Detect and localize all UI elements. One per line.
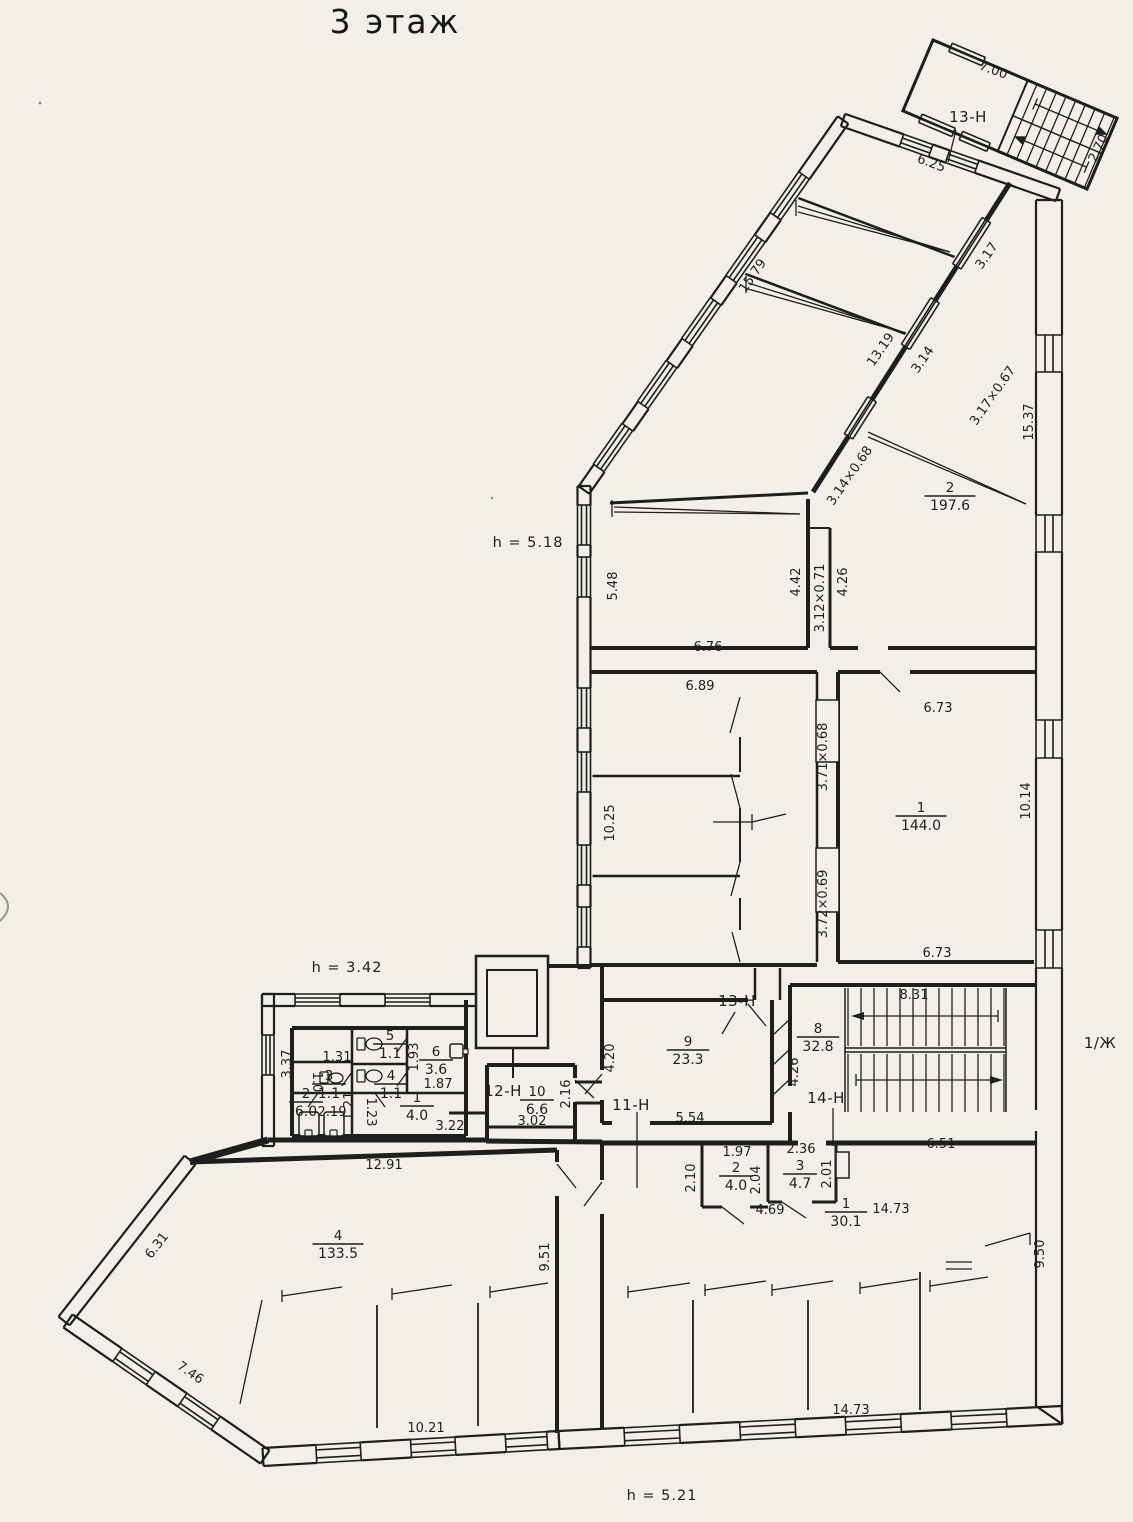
section-label: 14-Н: [807, 1089, 845, 1107]
room-number: 3: [325, 1068, 334, 1084]
height-label: h = 5.21: [627, 1488, 698, 1504]
room-number: 6: [432, 1044, 441, 1060]
dimension-label: 4.20: [603, 1044, 618, 1073]
section-label: 1/Ж: [1084, 1034, 1116, 1052]
dimension-label: 1.31: [323, 1050, 352, 1065]
wall-line: [240, 1300, 262, 1404]
dimension-label: 6.31: [142, 1230, 172, 1262]
room-label: 1144.0: [896, 800, 947, 834]
fixture: [487, 970, 537, 1036]
wall-line: [316, 1445, 317, 1463]
room-number: 1: [413, 1090, 422, 1106]
room-label: 24.0: [719, 1160, 753, 1194]
fixture: [836, 1152, 849, 1178]
room-number: 5: [386, 1028, 395, 1044]
stair-arrow-icon: [851, 1012, 864, 1020]
fixture: [357, 1038, 365, 1050]
room-label: 4133.5: [313, 1228, 364, 1262]
wall-line: [557, 1164, 576, 1188]
dimension-label: 14.73: [832, 1403, 869, 1418]
wall-line: [795, 1419, 796, 1437]
wall-line: [455, 1437, 456, 1455]
dimension-label: 3.37: [280, 1050, 295, 1079]
wall-line: [740, 1422, 741, 1440]
dimension-label: 6.73: [923, 946, 952, 961]
dimension-label: 7.00: [977, 59, 1009, 83]
wall-line: [782, 1202, 806, 1218]
wall-line: [705, 1281, 766, 1290]
dimension-label: 6.73: [924, 701, 953, 716]
dimension-label: 1.97: [723, 1145, 752, 1160]
wall-line: [63, 1328, 260, 1464]
dimension-label: 4.26: [836, 568, 851, 597]
toilet-bowl-icon: [366, 1070, 382, 1082]
dimension-label: 2.10: [684, 1164, 699, 1193]
walls-layer: [58, 114, 1062, 1466]
wall-line: [70, 1164, 196, 1325]
wall-line: [584, 1182, 602, 1206]
dimension-label: 8.31: [900, 988, 929, 1003]
wall-line: [731, 774, 740, 808]
window-clear: [1034, 515, 1064, 552]
dimension-label: 2.70: [1086, 132, 1112, 165]
fixture: [357, 1070, 365, 1082]
wall-line: [262, 1448, 263, 1466]
room-label: 63.6: [419, 1044, 453, 1078]
wall-line: [901, 1414, 902, 1432]
window-clear: [1034, 930, 1064, 968]
dimension-label: 9.51: [538, 1243, 553, 1272]
wall-line: [585, 1074, 602, 1094]
wall-line: [486, 1141, 602, 1142]
wall-line: [505, 1434, 506, 1452]
wall-line: [773, 1020, 789, 1035]
wall-line: [1013, 116, 1102, 154]
wall-line: [772, 1281, 833, 1290]
room-area: 6.6: [526, 1102, 548, 1118]
wall-line: [722, 1012, 735, 1034]
section-label: 13-Н: [949, 108, 987, 126]
section-label: 13-Н: [718, 992, 756, 1010]
height-label: h = 5.18: [493, 535, 564, 551]
wall-line: [722, 1207, 744, 1224]
stair-arrow-icon: [990, 1076, 1003, 1084]
room-area: 6.0: [295, 1104, 317, 1120]
wall-line: [360, 1442, 361, 1460]
wall-line: [731, 862, 740, 896]
dimension-label: 1.93: [407, 1043, 422, 1072]
wall-line: [985, 1233, 1030, 1246]
wall-line: [282, 1287, 342, 1296]
room-area: 133.5: [318, 1246, 358, 1262]
dimension-label: 3.22: [436, 1119, 465, 1134]
floor-plan: 7.006.252.7015.793.1713.193.143.17×0.671…: [0, 0, 1133, 1522]
room-area: 4.0: [406, 1108, 428, 1124]
room-area: 144.0: [901, 818, 941, 834]
wall-line: [624, 1428, 625, 1446]
dimension-label: 1.23: [363, 1098, 378, 1127]
scan-speck: [491, 497, 493, 499]
room-number: 2: [732, 1160, 741, 1176]
dimension-label: 4.69: [756, 1203, 785, 1218]
wall-line: [490, 1283, 548, 1292]
dimension-label: 1.87: [424, 1077, 453, 1092]
dimension-label: 3.14: [909, 344, 938, 376]
room-area: 1.1: [318, 1086, 340, 1102]
dimension-label: 6.89: [686, 679, 715, 694]
dimension-label: 6.76: [694, 640, 723, 655]
room-number: 1: [842, 1196, 851, 1212]
room-number: 10: [528, 1084, 545, 1100]
wall-line: [1036, 1406, 1062, 1424]
wall-line: [905, 300, 935, 346]
wall-line: [793, 196, 960, 259]
dimension-label: 2.04: [749, 1166, 764, 1195]
room-area: 4.0: [725, 1178, 747, 1194]
room-label: 2197.6: [925, 480, 976, 514]
dimension-label: 15.37: [1022, 403, 1037, 440]
wall-line: [628, 1283, 690, 1292]
dimension-label: 6.51: [927, 1137, 956, 1152]
wall-line: [1006, 1409, 1007, 1427]
dimension-label: 6.25: [915, 152, 947, 176]
window-clear: [1034, 335, 1064, 372]
room-number: 4: [387, 1068, 396, 1084]
room-area: 4.7: [789, 1176, 811, 1192]
dimension-label: 3.14×0.68: [824, 444, 876, 509]
room-label: 923.3: [667, 1034, 709, 1068]
room-number: 2: [946, 480, 955, 496]
fixture: [305, 1130, 312, 1136]
dimension-label: 10.21: [407, 1421, 444, 1436]
room-area: 32.8: [802, 1039, 833, 1055]
dimension-label: 14.73: [872, 1202, 909, 1217]
window-clear: [900, 297, 941, 351]
dimension-label: 7.46: [174, 1359, 206, 1388]
windows-layer: [112, 132, 1064, 1465]
wall-line: [579, 486, 590, 493]
wall-line: [951, 1412, 952, 1430]
wall-line: [752, 814, 786, 822]
section-label: 12-Н: [484, 1082, 522, 1100]
dimension-label: 10.14: [1019, 782, 1034, 819]
wall-line: [845, 1417, 846, 1435]
wall-line: [559, 1431, 560, 1449]
wall-line: [798, 206, 950, 252]
fixture: [330, 1130, 337, 1136]
height-label: h = 3.42: [312, 960, 383, 976]
wall-line: [732, 932, 740, 962]
wall-line: [1022, 140, 1086, 167]
room-number: 4: [334, 1228, 343, 1244]
dimension-label: 3.17×0.67: [967, 364, 1019, 429]
labels-layer: 7.006.252.7015.793.1713.193.143.17×0.671…: [142, 59, 1116, 1504]
dimension-label: 1.21: [342, 1092, 357, 1121]
fixture: [450, 1044, 463, 1058]
dimension-label: 3.12×0.71: [813, 564, 828, 633]
section-label: 11-Н: [612, 1096, 650, 1114]
room-area: 1.1: [379, 1046, 401, 1062]
dimension-label: 12.91: [365, 1158, 402, 1173]
dimension-label: 2.01: [820, 1160, 835, 1189]
dimension-label: 2.16: [559, 1080, 574, 1109]
window-clear: [1034, 720, 1064, 758]
stairs-layer: [845, 34, 1120, 1112]
dimension-label: 3.72×0.69: [816, 870, 831, 939]
scan-speck: [39, 102, 42, 105]
room-label: 106.6: [520, 1084, 554, 1118]
wall-line: [610, 493, 808, 503]
room-area: 23.3: [672, 1052, 703, 1068]
dimension-label: 10.25: [603, 804, 618, 841]
dimension-label: 5.54: [676, 1111, 705, 1126]
room-label: 14.0: [400, 1090, 434, 1124]
room-number: 3: [796, 1158, 805, 1174]
wall-line: [392, 1285, 452, 1294]
room-number: 1: [917, 800, 926, 816]
room-label: 832.8: [797, 1021, 839, 1055]
wall-line: [1065, 109, 1095, 180]
wall-line: [748, 283, 906, 333]
floor-title: 3 этаж: [300, 2, 490, 41]
wall-line: [906, 301, 936, 347]
scan-page: 7.006.252.7015.793.1713.193.143.17×0.671…: [0, 0, 1133, 1522]
room-label: 34.7: [783, 1158, 817, 1192]
wall-line: [860, 1279, 918, 1288]
dimension-label: 9.50: [1033, 1240, 1048, 1269]
room-number: 2: [302, 1086, 311, 1102]
room-area: 3.6: [425, 1062, 447, 1078]
dimension-label: 3.71×0.68: [816, 723, 831, 792]
fixture: [463, 1049, 468, 1054]
dimension-label: 4.26: [787, 1058, 802, 1087]
room-area: 1.1: [380, 1086, 402, 1102]
wall-line: [880, 672, 900, 692]
wall-line: [73, 1314, 270, 1450]
wall-line: [410, 1440, 411, 1458]
dimension-label: 4.42: [789, 568, 804, 597]
wall-line: [748, 289, 906, 333]
wall-line: [798, 212, 950, 252]
wall-line: [930, 1277, 988, 1286]
room-area: 30.1: [830, 1214, 861, 1230]
room-area: 197.6: [930, 498, 970, 514]
dimension-label: 2.36: [787, 1142, 816, 1157]
room-number: 9: [684, 1034, 693, 1050]
wall-line: [679, 1425, 680, 1443]
scan-smudge: [0, 893, 8, 921]
room-number: 8: [814, 1021, 823, 1037]
dimension-label: 5.48: [606, 572, 621, 601]
wall-line: [547, 1432, 548, 1450]
wall-line: [730, 697, 740, 733]
